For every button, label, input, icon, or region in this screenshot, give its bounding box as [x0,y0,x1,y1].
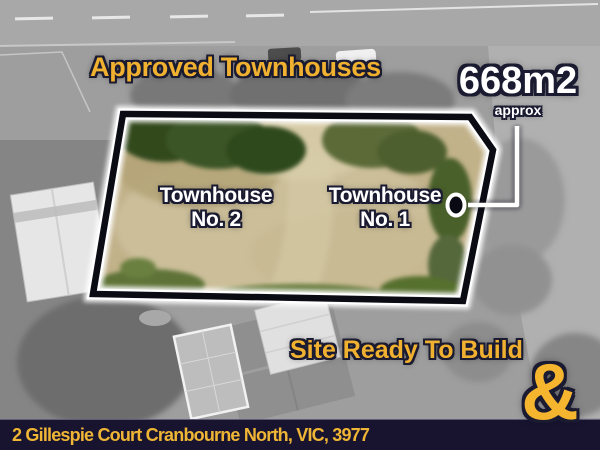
property-flyer: Approved Townhouses 668m2 approx Townhou… [0,0,600,450]
lot-interior-colour [80,100,510,315]
yard-item [139,310,171,326]
brand-ampersand-logo: & [521,352,579,432]
townhouse-2-line2: No. 2 [160,208,272,232]
area-value: 668m2 [459,62,577,100]
townhouse-1-label: Townhouse No. 1 [329,184,441,232]
townhouse-2-label: Townhouse No. 2 [160,184,272,232]
townhouse-1-line2: No. 1 [329,208,441,232]
lot-marker-dot [448,195,465,216]
site-ready-label: Site Ready To Build [290,336,523,365]
townhouse-2-line1: Townhouse [160,184,272,208]
address-footer-bar: 2 Gillespie Court Cranbourne North, VIC,… [0,419,600,450]
townhouse-1-line1: Townhouse [329,184,441,208]
approved-townhouses-label: Approved Townhouses [90,52,381,83]
area-badge: 668m2 approx [459,62,577,117]
area-qualifier: approx [459,103,577,117]
property-address: 2 Gillespie Court Cranbourne North, VIC,… [12,425,369,446]
